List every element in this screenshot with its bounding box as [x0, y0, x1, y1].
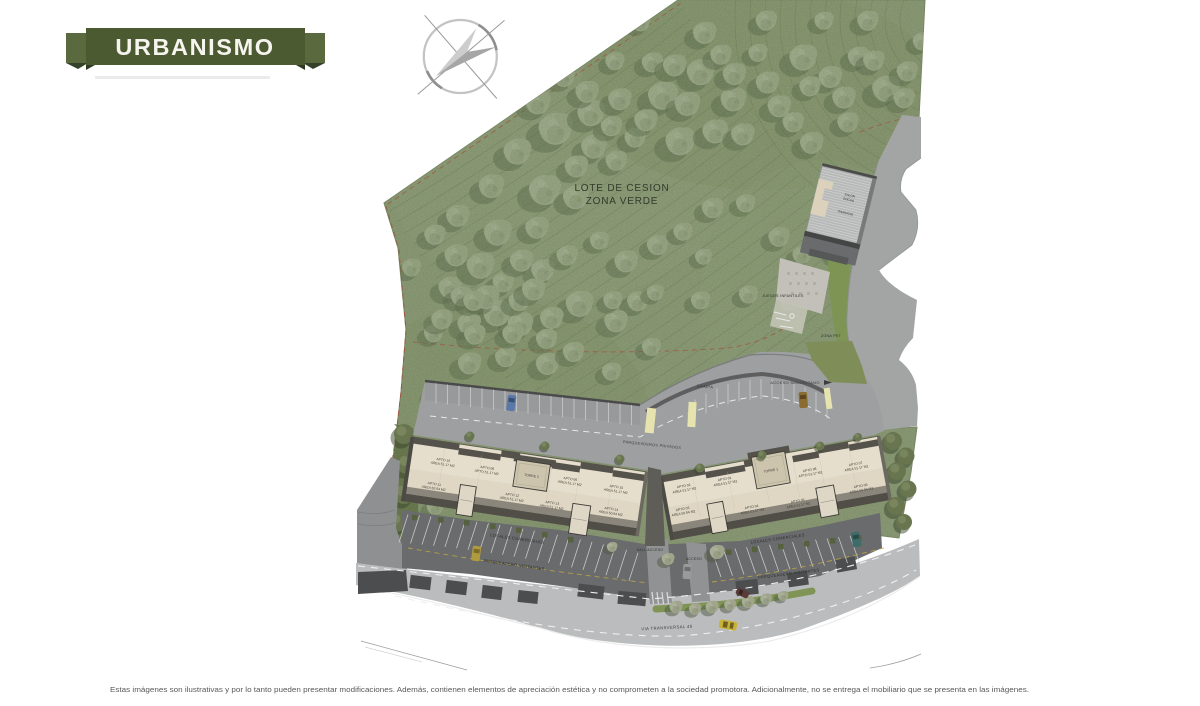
svg-text:ZONA PET: ZONA PET — [821, 334, 842, 338]
svg-text:LOTE DE CESION: LOTE DE CESION — [574, 183, 669, 194]
svg-text:JUEGOS INFANTILES: JUEGOS INFANTILES — [762, 294, 804, 298]
svg-text:ZONA VERDE: ZONA VERDE — [586, 196, 658, 207]
svg-text:Estas imágenes son ilustrativa: Estas imágenes son ilustrativas y por lo… — [110, 686, 1029, 694]
svg-text:HALL ACCESO: HALL ACCESO — [637, 548, 664, 552]
svg-text:ACCESO SEMISOTANO: ACCESO SEMISOTANO — [770, 380, 819, 385]
svg-text:ACCESO: ACCESO — [686, 557, 702, 561]
svg-text:URBANISMO: URBANISMO — [115, 34, 274, 60]
